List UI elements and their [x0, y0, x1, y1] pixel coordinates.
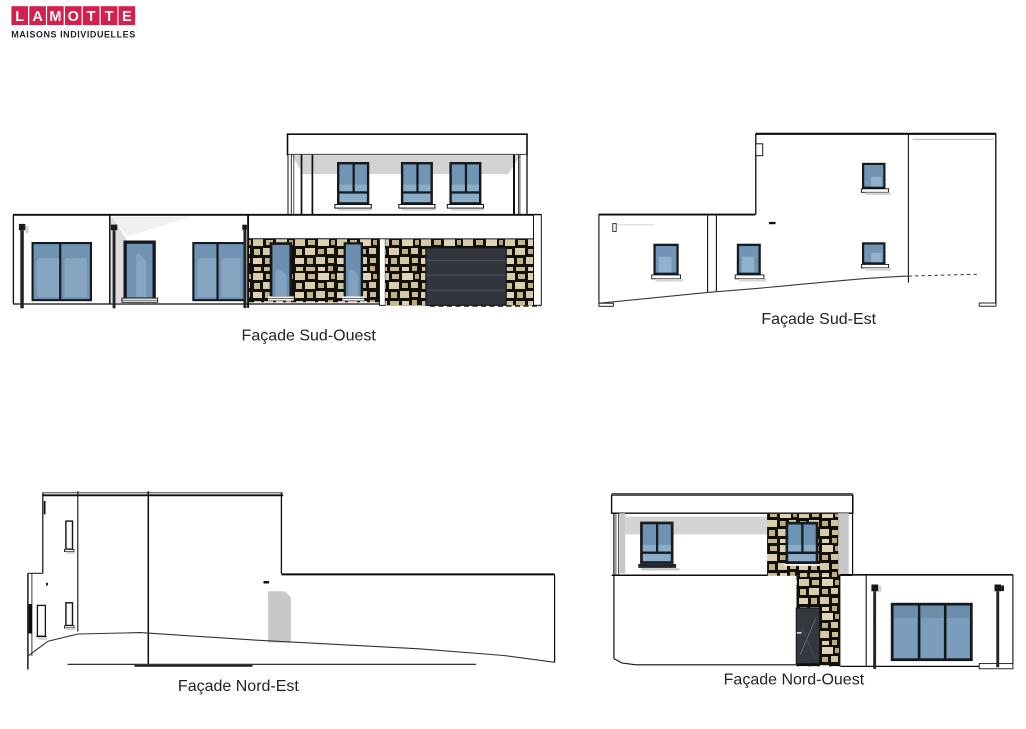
svg-text:MAISONS INDIVIDUELLES: MAISONS INDIVIDUELLES [11, 29, 136, 39]
svg-text:A: A [32, 9, 43, 25]
svg-text:T: T [87, 9, 96, 25]
svg-text:Façade Sud-Est: Façade Sud-Est [761, 311, 876, 328]
svg-text:E: E [122, 9, 132, 25]
svg-text:O: O [68, 9, 79, 25]
svg-text:L: L [15, 9, 24, 25]
svg-text:Façade Sud-Ouest: Façade Sud-Ouest [242, 327, 377, 344]
svg-text:T: T [105, 9, 114, 25]
svg-text:Façade Nord-Est: Façade Nord-Est [178, 678, 299, 695]
svg-text:M: M [49, 9, 61, 25]
svg-text:Façade Nord-Ouest: Façade Nord-Ouest [724, 671, 865, 688]
